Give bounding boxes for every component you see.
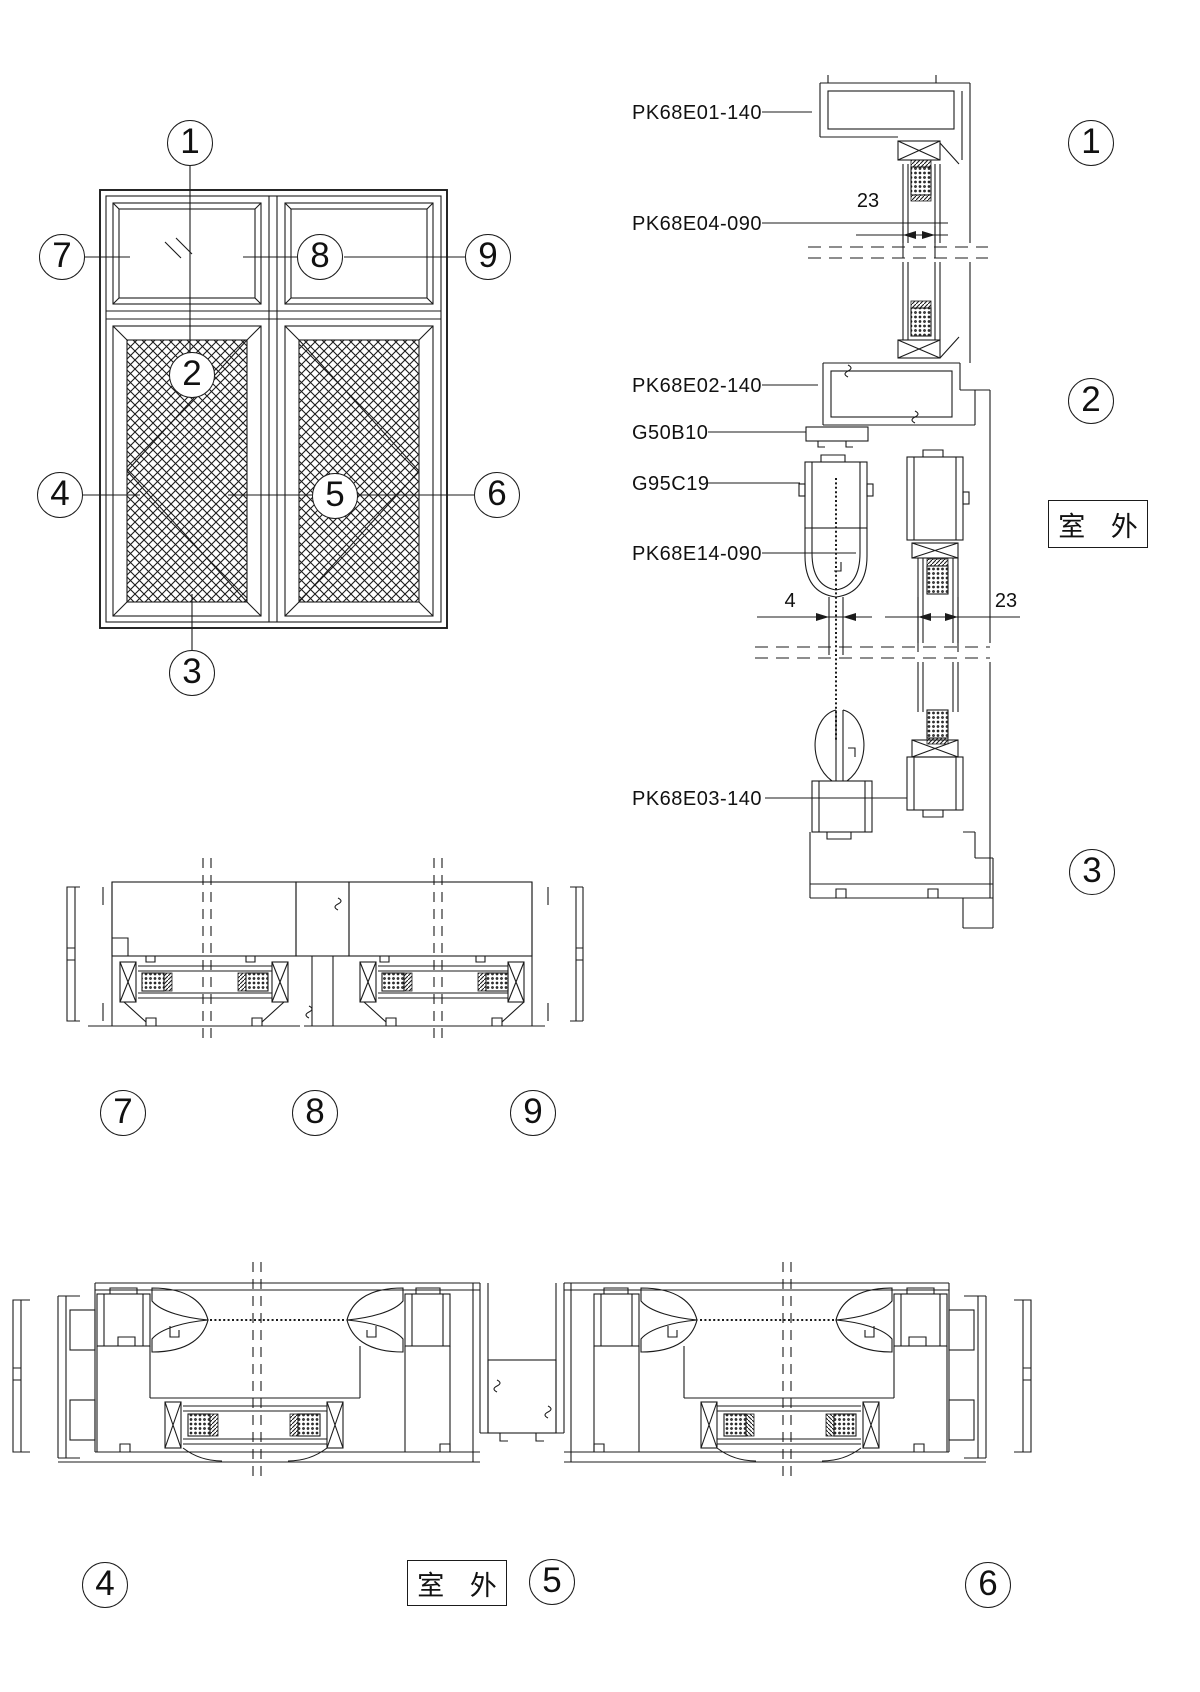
detail-bubble-3: 3 [1069, 849, 1115, 895]
detail-bubble-9: 9 [510, 1090, 556, 1136]
elevation-callout-6: 6 [474, 472, 520, 518]
detail-bubble-6: 6 [965, 1562, 1011, 1608]
part-label-pk68e04-090: PK68E04-090 [632, 213, 762, 236]
elevation-callout-9: 9 [465, 234, 511, 280]
part-label-g95c19: G95C19 [632, 473, 710, 496]
center-coupler [480, 1283, 564, 1441]
part-label-pk68e14-090: PK68E14-090 [632, 543, 762, 566]
glass-symbol [165, 238, 192, 258]
cad-drawing-canvas: 1 2 3 4 5 6 7 8 9 PK68E01-140 PK68E04-09… [0, 0, 1200, 1692]
elevation-drawing [83, 166, 474, 650]
elevation-callout-3: 3 [169, 650, 215, 696]
detail-bubble-1: 1 [1068, 120, 1114, 166]
elevation-callout-1: 1 [167, 120, 213, 166]
dim-text-glass-mid: 23 [988, 590, 1024, 613]
elevation-callout-5: 5 [312, 473, 358, 519]
part-label-g50b10: G50B10 [632, 422, 708, 445]
dim-text-glass-top: 23 [852, 190, 884, 213]
part-label-pk68e02-140: PK68E02-140 [632, 375, 762, 398]
dim-glass-top [856, 226, 948, 258]
part-label-pk68e01-140: PK68E01-140 [632, 102, 762, 125]
elevation-callout-2: 2 [169, 352, 215, 398]
outdoor-label-box-right: 室 外 [1048, 500, 1148, 548]
detail-bubble-2: 2 [1068, 378, 1114, 424]
dim-text-seal-gap: 4 [776, 590, 804, 613]
sill-section-drawing [13, 1262, 1031, 1482]
detail-bubble-4: 4 [82, 1562, 128, 1608]
elevation-callout-7: 7 [39, 234, 85, 280]
detail-bubble-8: 8 [292, 1090, 338, 1136]
detail-bubble-5: 5 [529, 1559, 575, 1605]
drawing-linework [0, 0, 1200, 1692]
outdoor-label-box-bottom: 室 外 [407, 1560, 507, 1606]
elevation-callout-4: 4 [37, 472, 83, 518]
head-jamb-section-drawing [67, 858, 583, 1044]
detail-bubble-7: 7 [100, 1090, 146, 1136]
dim-seal-gap [757, 597, 872, 655]
part-label-pk68e03-140: PK68E03-140 [632, 788, 762, 811]
elevation-callout-8: 8 [297, 234, 343, 280]
